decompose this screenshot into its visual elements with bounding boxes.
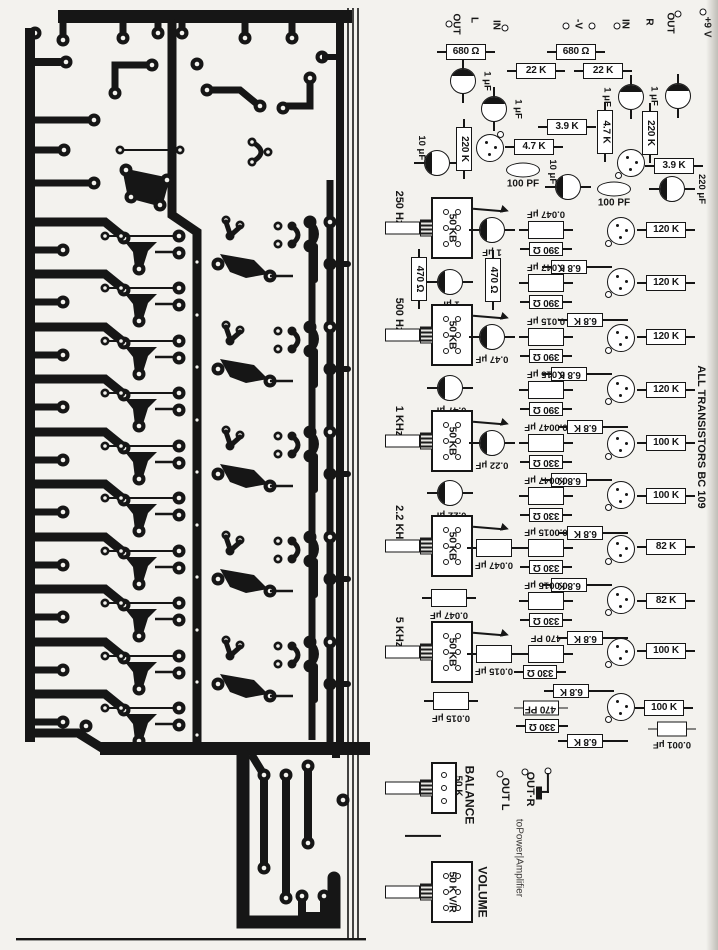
label-to-power-amplifier: toPower|Amplifier (479, 853, 557, 864)
transistor-bc109 (607, 268, 635, 296)
solder-pad (563, 23, 570, 30)
rh180-6-8-k: 6.8 K (567, 734, 603, 748)
cr-0-0015-f: 0.0015 μF (528, 539, 564, 557)
cc-0-47-f: 0.47 μF (479, 324, 505, 350)
rh-100-k: 100 K (644, 700, 684, 716)
rh-82-k: 82 K (646, 593, 686, 609)
label-500hz: 500 Hz (381, 309, 416, 321)
rh-4-7-k: 4.7 K (514, 139, 554, 155)
cc-220-f: 220 μF (659, 176, 685, 202)
rh180-330: 330 Ω (529, 508, 563, 522)
cc-1-f: 1 μF (665, 83, 691, 109)
rh-120-k: 120 K (646, 275, 686, 291)
rh-3-9-k: 3.9 K (654, 158, 694, 174)
cc-1-f: 1 μF (481, 96, 507, 122)
cr-0-0047-f: 0.0047 μF (528, 487, 564, 505)
cr-0-015-f: 0.015 μF (528, 328, 564, 346)
rh180-6-8-k: 6.8 K (567, 631, 603, 645)
vt-r: R (644, 17, 651, 28)
rh-100-k: 100 K (646, 643, 686, 659)
rh180-330: 330 Ω (529, 455, 563, 469)
solder-pad (502, 25, 509, 32)
rh-22-k: 22 K (583, 63, 623, 79)
solder-pad (497, 771, 504, 778)
rh180-330: 330 Ω (529, 613, 563, 627)
transistor-bc109 (607, 586, 635, 614)
pot-500hz: 50 KB (431, 304, 473, 366)
label-all-transistors-bc109: ALL TRANSISTORS BC 109 (628, 431, 718, 443)
cr-0-015-f: 0.015 μF (433, 692, 469, 710)
cr-0-047-f: 0.047 μF (528, 221, 564, 239)
cr-0-0047-f: 0.0047 μF (528, 434, 564, 452)
cc-10-f: 10 μF (555, 174, 581, 200)
label-volume: VOLUME (456, 886, 507, 899)
rh180-330: 330 Ω (525, 719, 559, 733)
label-in-r: IN (619, 19, 629, 30)
rv-220-k: 220 K (456, 127, 472, 171)
wire (405, 835, 441, 837)
wiper-arrow-icon (473, 202, 509, 214)
cc-1-f: 1 μF (437, 269, 463, 295)
rh180-6-8-k: 6.8 K (567, 526, 603, 540)
cc-1-f: 1 μF (479, 217, 505, 243)
label-out-l: OUT (444, 19, 465, 30)
transistor-bc109 (607, 481, 635, 509)
transistor-bc109 (617, 149, 645, 177)
cr-0-001-f: 0.001 μF (657, 722, 687, 737)
rv-470: 470 Ω (485, 258, 501, 302)
scan-edge-shadow (706, 0, 718, 950)
cc-0-22-f: 0.22 μF (437, 480, 463, 506)
rh-100-k: 100 K (646, 488, 686, 504)
rh180-390: 390 Ω (529, 242, 563, 256)
cc-0-47-f: 0.47 μF (437, 375, 463, 401)
cc-10-f: 10 μF (424, 150, 450, 176)
solder-pad (675, 11, 682, 18)
label-2-2khz: 2.2 KHz (378, 519, 418, 531)
rv-4-7-k: 4.7 K (597, 110, 613, 154)
rh180-470-pf: 470 PF (523, 701, 559, 716)
cr-0-047-f: 0.047 μF (528, 274, 564, 292)
rv-470: 470 Ω (411, 257, 427, 301)
wire (541, 791, 549, 793)
rh-3-9-k: 3.9 K (547, 119, 587, 135)
rh-120-k: 120 K (646, 382, 686, 398)
rh180-390: 390 Ω (529, 402, 563, 416)
rh180-330: 330 Ω (529, 560, 563, 574)
transistor-bc109 (607, 693, 635, 721)
label-250hz: 250 Hz (381, 202, 416, 214)
rh-680: 680 Ω (556, 44, 596, 60)
rh180-6-8-k: 6.8 K (567, 420, 603, 434)
cr-0-015-f: 0.015 μF (476, 645, 512, 663)
label-1khz: 1 KHz (383, 415, 414, 427)
rh-82-k: 82 K (646, 539, 686, 555)
transistor-bc109 (607, 217, 635, 245)
transistor-bc109 (607, 375, 635, 403)
rh-120-k: 120 K (646, 329, 686, 345)
cr-0-015-f: 0.015 μF (528, 381, 564, 399)
cc-1-f: 1 μF (450, 68, 476, 94)
wiper-arrow-icon (473, 626, 509, 638)
pot-1khz: 50 KB (431, 410, 473, 472)
transistor-bc109 (476, 134, 504, 162)
vt-l: L (470, 15, 476, 26)
lens-100-pf: 100 PF (506, 163, 540, 178)
lens-100-pf: 100 PF (597, 182, 631, 197)
rh180-330: 330 Ω (523, 665, 557, 679)
component-overlay: OUTLIN-VINROUT+9 V680 Ω1 μF1 μF22 K680 Ω… (0, 0, 718, 950)
pot-250hz: 50 KB (431, 197, 473, 259)
label-5khz: 5 KHz (383, 626, 414, 638)
pot-2-2khz: 50 KB (431, 515, 473, 577)
cr-0-047-f: 0.047 μF (431, 589, 467, 607)
pot-5khz: 50 KB (431, 621, 473, 683)
transistor-bc109 (607, 535, 635, 563)
cr-470-pf: 470 PF (528, 645, 564, 663)
wiper-arrow-icon (473, 520, 509, 532)
cc-1-f: 1 μF (618, 84, 644, 110)
label-neg-v: -V (572, 19, 582, 30)
cr-0-0015-f: 0.0015 μF (528, 592, 564, 610)
solder-pad (589, 23, 596, 30)
label-in-l: IN (490, 20, 500, 31)
label-out-r-top: OUT (658, 18, 679, 29)
wiper-arrow-icon (473, 415, 509, 427)
rh-22-k: 22 K (516, 63, 556, 79)
rh180-390: 390 Ω (529, 295, 563, 309)
rh180-390: 390 Ω (529, 349, 563, 363)
rh180-6-8-k: 6.8 K (567, 313, 603, 327)
transistor-bc109 (607, 324, 635, 352)
wiper-arrow-icon (473, 309, 509, 321)
equalizer-pcb-layout-sheet: OUTLIN-VINROUT+9 V680 Ω1 μF1 μF22 K680 Ω… (0, 0, 718, 950)
rh-120-k: 120 K (646, 222, 686, 238)
rh-680: 680 Ω (446, 44, 486, 60)
rh180-6-8-k: 6.8 K (553, 684, 589, 698)
transistor-bc109 (607, 638, 635, 666)
jumper-blob (536, 787, 542, 800)
cr-0-047-f: 0.047 μF (476, 539, 512, 557)
cc-0-22-f: 0.22 μF (479, 430, 505, 456)
